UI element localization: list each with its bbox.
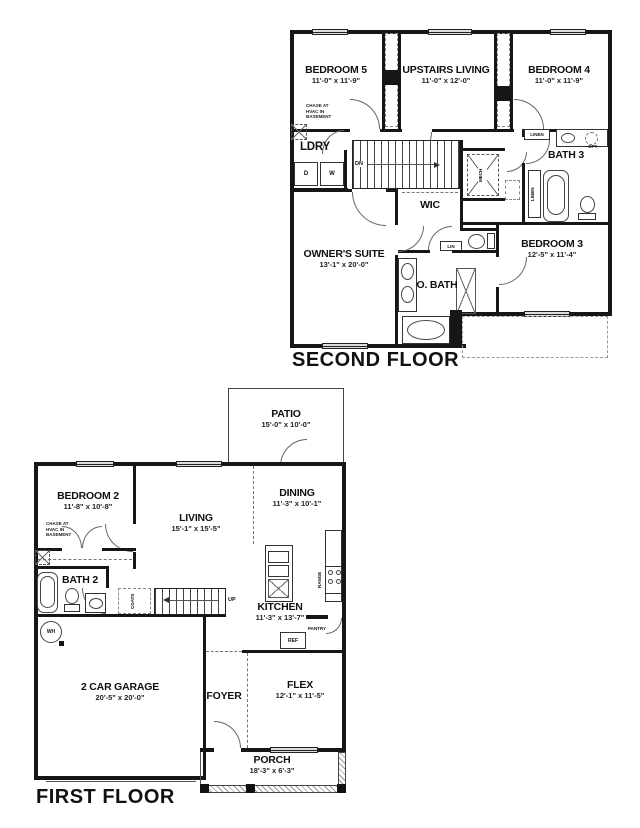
stairs-arrow-head xyxy=(434,162,440,168)
wall xyxy=(241,748,270,752)
wh-label: WH xyxy=(47,629,55,635)
pantry-label: PANTRY xyxy=(308,626,326,631)
wall xyxy=(450,310,462,346)
wall xyxy=(242,650,346,653)
burner xyxy=(336,570,341,575)
wall xyxy=(306,615,328,619)
room-label-bedroom3: BEDROOM 3 12'-5" x 11'-4" xyxy=(521,238,583,260)
roof-outline xyxy=(462,316,608,358)
window xyxy=(176,461,222,467)
closet-shelving xyxy=(497,33,510,127)
post xyxy=(59,641,64,646)
porch-column xyxy=(246,784,255,793)
wall xyxy=(460,140,463,228)
wall xyxy=(290,189,352,192)
room-label-obath: O. BATH xyxy=(417,279,458,291)
door-arc xyxy=(499,257,527,285)
room-label-bath3: BATH 3 xyxy=(548,149,584,161)
window xyxy=(312,29,348,35)
porch-step-hatch xyxy=(200,785,346,793)
wall xyxy=(463,198,505,201)
burner xyxy=(336,579,341,584)
wall xyxy=(510,30,513,129)
stairs-arrow-head xyxy=(163,597,169,603)
floor-plan-sheet: { "second_floor": { "title": "SECOND FLO… xyxy=(0,0,640,828)
wall xyxy=(463,148,505,151)
first-floor-title: FIRST FLOOR xyxy=(36,786,175,809)
room-divider-dashes xyxy=(253,466,254,544)
wall xyxy=(106,566,109,588)
window xyxy=(428,29,472,35)
porch-column xyxy=(200,784,209,793)
door-arc xyxy=(398,226,424,252)
dryer-label: D xyxy=(304,171,308,177)
room-label-kitchen: KITCHEN 11'-3" x 13'-7" xyxy=(256,601,305,623)
wall xyxy=(522,163,525,222)
wall xyxy=(460,228,498,231)
wall xyxy=(382,70,401,85)
chase-note: CHASE AT HVAC IN BASEMENT xyxy=(46,521,71,538)
island-sink xyxy=(268,551,289,563)
room-label-bath2: BATH 2 xyxy=(62,574,98,586)
wall xyxy=(496,225,499,257)
porch-step-hatch xyxy=(338,752,346,786)
island-sink xyxy=(268,565,289,577)
ref-label: REF xyxy=(288,638,298,644)
room-label-dining: DINING 11'-3" x 10'-1" xyxy=(273,487,322,509)
wall xyxy=(34,776,206,780)
closet-shelf-dashes xyxy=(402,192,458,193)
sink xyxy=(401,263,414,280)
room-label-owners-suite: OWNER'S SUITE 13'-1" x 20'-0" xyxy=(304,248,385,270)
wall xyxy=(380,129,402,132)
toilet-tank xyxy=(64,604,80,612)
mech-label: MECH xyxy=(478,158,487,192)
tub-inner xyxy=(547,175,565,215)
door-arc xyxy=(428,226,452,250)
wall xyxy=(494,86,513,101)
sink xyxy=(561,133,575,143)
porch-edge xyxy=(200,752,201,785)
opt-label: OPT xyxy=(588,144,597,149)
wall xyxy=(102,548,136,551)
wall xyxy=(460,222,612,225)
room-label-flex: FLEX 12'-1" x 11'-5" xyxy=(276,679,325,701)
stairs-arrow xyxy=(368,164,434,165)
room-label-bedroom2: BEDROOM 2 11'-8" x 10'-8" xyxy=(57,490,119,512)
closet-rod-dashes xyxy=(38,559,132,560)
wall xyxy=(460,250,498,253)
shower xyxy=(456,268,476,314)
porch-column xyxy=(337,784,346,793)
tub-inner xyxy=(40,576,55,608)
dishwasher xyxy=(268,579,289,598)
linen-closet: LINEN xyxy=(524,129,550,140)
wall xyxy=(344,150,347,191)
toilet-bowl xyxy=(580,196,595,213)
washer-box: W xyxy=(320,162,344,186)
tub xyxy=(407,320,445,340)
refrigerator: REF xyxy=(280,632,306,649)
chase-box xyxy=(291,124,307,140)
range-label: RANGE xyxy=(317,568,324,592)
door-arc xyxy=(352,192,386,226)
coats-label: COATS xyxy=(130,590,138,612)
sink xyxy=(401,286,414,303)
dryer-box: D xyxy=(294,162,318,186)
toilet-bowl xyxy=(65,588,79,604)
wall xyxy=(432,129,514,132)
opening-dashes xyxy=(206,651,242,652)
garage-door-line xyxy=(46,781,196,782)
wall xyxy=(133,552,136,569)
room-label-porch: PORCH 18'-3" x 6'-3" xyxy=(250,754,295,776)
room-label-bedroom5: BEDROOM 5 11'-0" x 11'-9" xyxy=(305,64,367,86)
wh-circle: WH xyxy=(40,621,62,643)
wall xyxy=(34,462,38,780)
room-label-upstairs-living: UPSTAIRS LIVING 11'-0" x 12'-0" xyxy=(402,64,489,86)
door-arc xyxy=(350,99,380,129)
stairs-up-label: UP xyxy=(228,597,236,603)
closet-door-arc xyxy=(82,526,102,548)
wall xyxy=(342,462,346,752)
window xyxy=(550,29,586,35)
room-label-laundry: LDRY xyxy=(300,141,330,154)
pantry-door-arc xyxy=(326,618,342,634)
door-arc xyxy=(514,99,544,129)
burner xyxy=(328,579,333,584)
wall xyxy=(133,462,136,524)
wall xyxy=(395,189,398,225)
chase-box xyxy=(35,550,50,565)
room-label-garage: 2 CAR GARAGE 20'-5" x 20'-0" xyxy=(81,681,159,703)
burner xyxy=(328,570,333,575)
room-label-foyer: FOYER xyxy=(206,690,241,702)
front-door-arc xyxy=(214,721,241,748)
room-label-living: LIVING 15'-1" x 15'-5" xyxy=(171,512,220,534)
window xyxy=(76,461,114,467)
flex-opening-dashes xyxy=(247,653,248,748)
sink xyxy=(89,598,103,609)
chase-box xyxy=(505,180,520,200)
linen-label: LINEN xyxy=(530,176,538,212)
linen-label: LINEN xyxy=(530,132,544,137)
wall xyxy=(496,287,499,314)
stairs-dn-label: DN xyxy=(354,161,364,167)
second-floor-title: SECOND FLOOR xyxy=(292,349,459,372)
chase-note: CHASE AT HVAC IN BASEMENT xyxy=(306,103,331,120)
room-label-wic: WIC xyxy=(420,199,440,211)
room-label-bedroom4: BEDROOM 4 11'-0" x 11'-9" xyxy=(528,64,590,86)
stairs-arrow xyxy=(170,600,218,601)
toilet-bowl xyxy=(468,234,485,249)
window xyxy=(270,747,318,753)
wall xyxy=(290,344,466,348)
washer-label: W xyxy=(329,171,335,177)
toilet-tank xyxy=(487,233,495,249)
toilet-tank xyxy=(578,213,596,220)
door-arc xyxy=(526,140,550,164)
room-label-patio: PATIO 15'-0" x 10'-0" xyxy=(261,408,310,430)
wall xyxy=(608,30,612,316)
wall xyxy=(34,566,109,569)
